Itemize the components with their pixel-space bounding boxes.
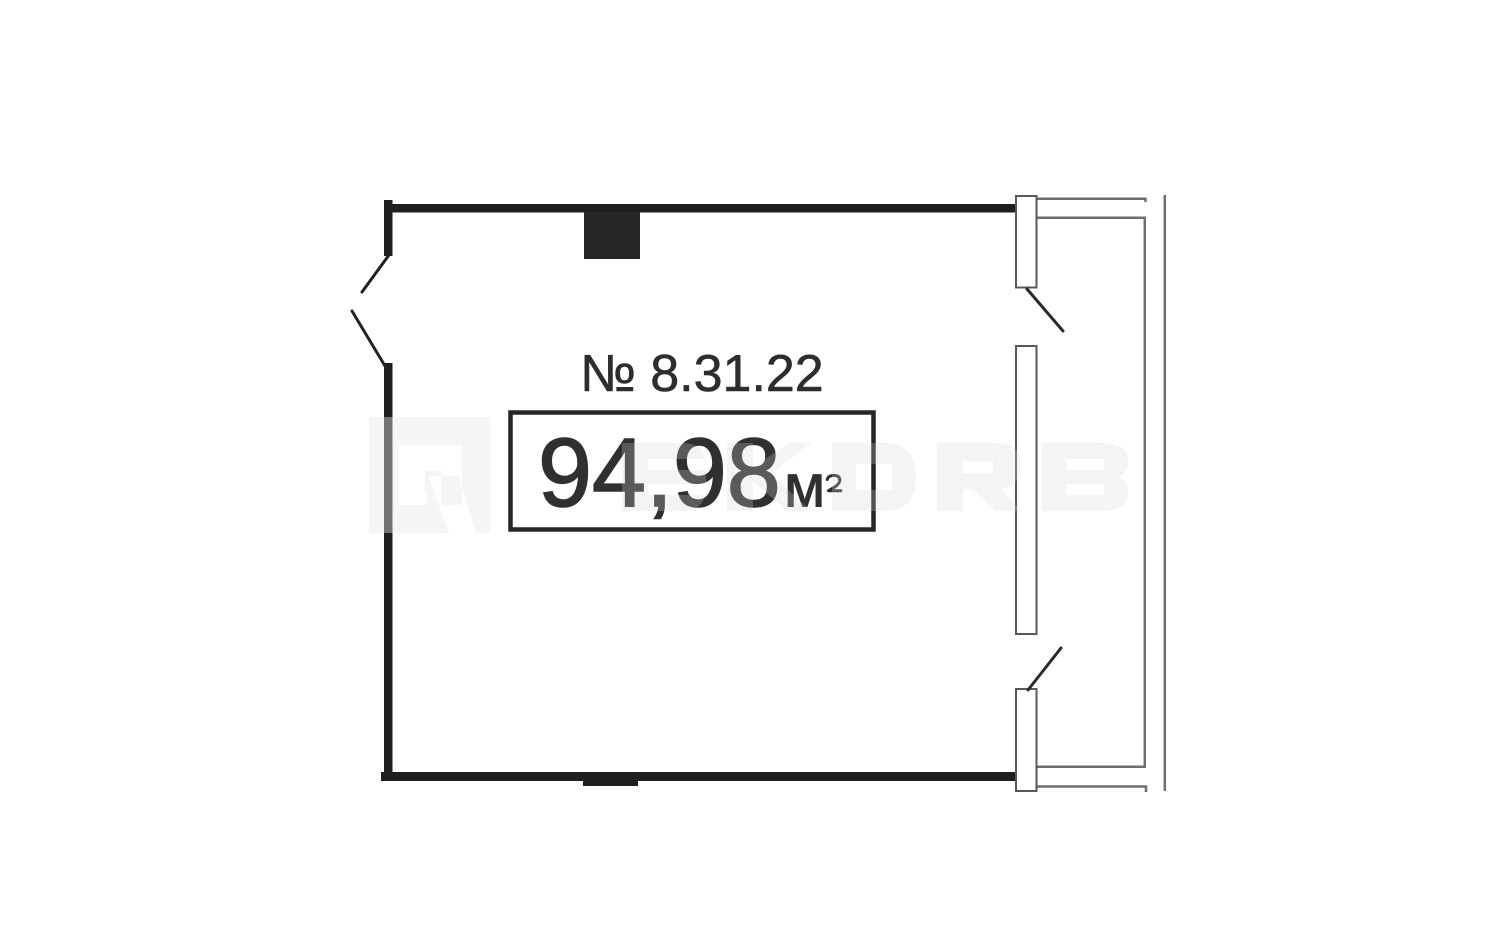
- svg-text:№ 8.31.22: № 8.31.22: [580, 345, 824, 403]
